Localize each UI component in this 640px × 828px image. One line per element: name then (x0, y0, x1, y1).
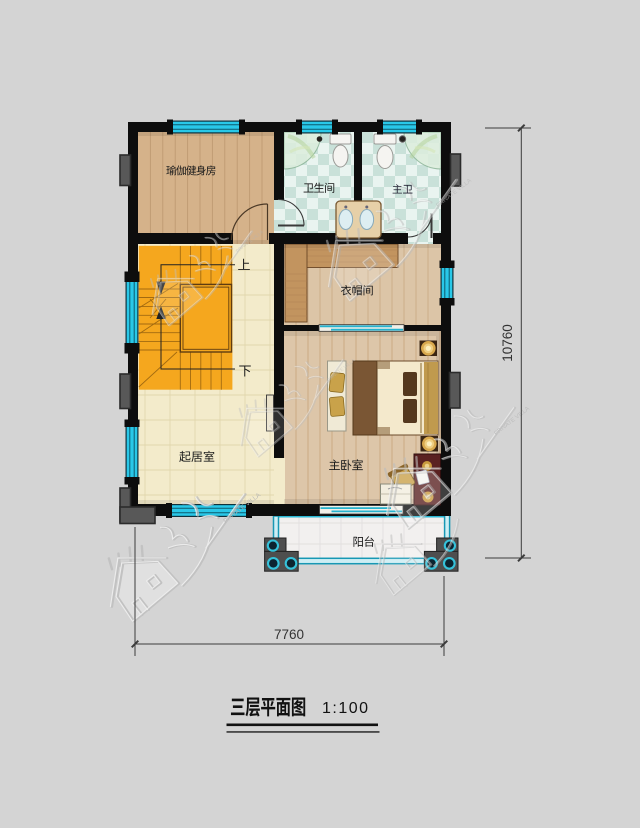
svg-text:1:100: 1:100 (322, 700, 370, 717)
svg-text:7760: 7760 (274, 627, 304, 642)
svg-text:10760: 10760 (500, 324, 515, 362)
